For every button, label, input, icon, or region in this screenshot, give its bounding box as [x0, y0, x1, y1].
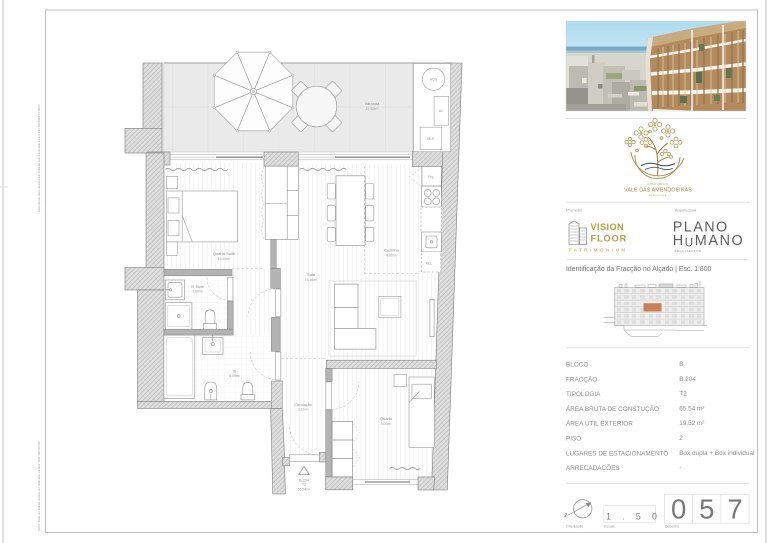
svg-text:9.00m²: 9.00m² — [381, 422, 392, 426]
svg-text:ÁREA ÚTIL EXTERIOR: ÁREA ÚTIL EXTERIOR — [566, 419, 633, 428]
svg-text:PISO: PISO — [566, 436, 581, 443]
svg-text:AC: AC — [439, 109, 444, 113]
svg-text:PATRIMONIUM: PATRIMONIUM — [569, 248, 628, 253]
svg-text:AQS: AQS — [430, 78, 438, 82]
svg-text:B.204: B.204 — [679, 376, 696, 383]
svg-text:19.52 m²: 19.52 m² — [679, 420, 704, 427]
svg-text:VALE DAS AMENDOEIRAS: VALE DAS AMENDOEIRAS — [624, 187, 692, 193]
svg-text:FLOOR: FLOOR — [591, 234, 628, 244]
svg-text:8.30m²: 8.30m² — [386, 253, 397, 257]
svg-text:z: z — [564, 513, 568, 519]
svg-text:-: - — [679, 465, 681, 472]
svg-text:Desenho: Desenho — [665, 525, 679, 529]
svg-text:VISION: VISION — [591, 222, 625, 232]
svg-text:BLOCO: BLOCO — [566, 362, 588, 369]
svg-text:LUGARES DE ESTACIONAMENTO: LUGARES DE ESTACIONAMENTO — [566, 450, 668, 457]
svg-text:5.09m²: 5.09m² — [229, 374, 240, 378]
svg-text:Orientação: Orientação — [566, 525, 583, 529]
svg-text:Varanda: Varanda — [365, 101, 381, 106]
svg-text:ARQUITECTOS: ARQUITECTOS — [674, 249, 701, 253]
svg-text:Identificação da Fracção no Al: Identificação da Fracção no Alçado | Esc… — [566, 266, 712, 273]
svg-text:B: B — [679, 361, 683, 368]
svg-text:19.52m²: 19.52m² — [365, 107, 379, 111]
svg-text:B.204: B.204 — [299, 479, 309, 483]
svg-text:15.96m²: 15.96m² — [305, 278, 318, 282]
svg-text:HUMANO: HUMANO — [673, 233, 745, 250]
svg-text:Circulação: Circulação — [294, 403, 311, 407]
svg-text:MLL: MLL — [426, 262, 433, 266]
svg-text:5: 5 — [699, 494, 714, 525]
svg-text:ÁREA BRUTA DE CONSTUÇÃO: ÁREA BRUTA DE CONSTUÇÃO — [566, 404, 659, 413]
svg-text:NOTA: Todas as medidas deverão: NOTA: Todas as medidas deverão ser verif… — [37, 441, 41, 531]
svg-text:T2: T2 — [679, 391, 687, 398]
svg-text:15.51m²: 15.51m² — [218, 257, 231, 261]
svg-text:2.65m²: 2.65m² — [192, 289, 203, 293]
svg-text:ALBUFEIRA: ALBUFEIRA — [649, 194, 667, 197]
svg-text:IS: IS — [233, 370, 237, 374]
svg-text:2: 2 — [679, 435, 683, 442]
svg-text:TIPOLOGIA: TIPOLOGIA — [566, 391, 601, 398]
svg-text:IS Suite: IS Suite — [191, 285, 204, 289]
svg-text:FRACÇÃO: FRACÇÃO — [566, 374, 597, 383]
svg-text:0: 0 — [671, 494, 686, 525]
svg-text:65.54m²: 65.54m² — [298, 488, 311, 492]
svg-text:Quarto Suite: Quarto Suite — [213, 251, 236, 256]
svg-text:Quarto: Quarto — [380, 416, 393, 421]
svg-text:7: 7 — [727, 494, 742, 525]
svg-text:Reproduções deste desenho são: Reproduções deste desenho são proibidas … — [37, 104, 41, 212]
svg-text:T2: T2 — [302, 483, 306, 487]
svg-text:Escala: Escala — [604, 525, 615, 529]
svg-text:ARRECADAÇÕES: ARRECADAÇÕES — [566, 463, 620, 472]
svg-text:Box dupla + Box individual: Box dupla + Box individual — [679, 450, 754, 457]
svg-text:Sala: Sala — [307, 272, 316, 277]
svg-text:Promotor: Promotor — [566, 208, 583, 213]
svg-text:Arquitectura: Arquitectura — [675, 208, 697, 213]
svg-text:1 . 5 0: 1 . 5 0 — [606, 512, 661, 522]
svg-text:Cozinha: Cozinha — [384, 248, 399, 253]
svg-text:65.54 m²: 65.54 m² — [679, 405, 704, 412]
svg-text:Frg: Frg — [428, 175, 433, 179]
svg-text:CONDOMÍNIO: CONDOMÍNIO — [648, 183, 669, 186]
svg-text:MLR: MLR — [427, 137, 435, 141]
svg-text:3.21m²: 3.21m² — [298, 407, 309, 411]
